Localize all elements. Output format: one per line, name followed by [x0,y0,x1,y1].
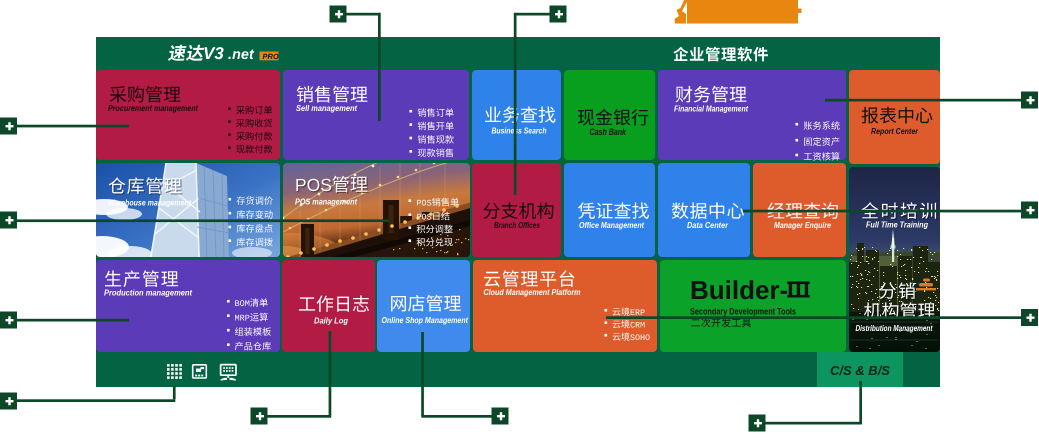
svg-text:Secondary Development Tools: Secondary Development Tools [690,307,796,318]
svg-text:Business Search: Business Search [492,126,547,136]
svg-text:Procurement management: Procurement management [108,103,199,113]
svg-text:Cash Bank: Cash Bank [590,127,627,137]
svg-text:C/S & B/S: C/S & B/S [830,363,890,378]
svg-text:Full Time Training: Full Time Training [866,220,929,230]
svg-text:Office Management: Office Management [579,220,645,230]
svg-text:Warehouse management: Warehouse management [108,198,192,208]
svg-text:Branch Offices: Branch Offices [494,220,540,230]
svg-text:Sell management: Sell management [296,103,358,113]
svg-text:Online Shop Management: Online Shop Management [382,316,469,325]
svg-text:Production management: Production management [104,288,193,298]
svg-text:POS management: POS management [295,197,358,207]
svg-text:Data Center: Data Center [687,220,729,230]
svg-text:Distribution Management: Distribution Management [856,324,933,333]
svg-text:Report Center: Report Center [871,126,919,136]
svg-text:Financial Management: Financial Management [674,103,749,113]
svg-text:Daily Log: Daily Log [314,316,349,326]
svg-text:Cloud Management Platform: Cloud Management Platform [484,287,581,297]
svg-text:Manager Enquire: Manager Enquire [774,220,831,230]
